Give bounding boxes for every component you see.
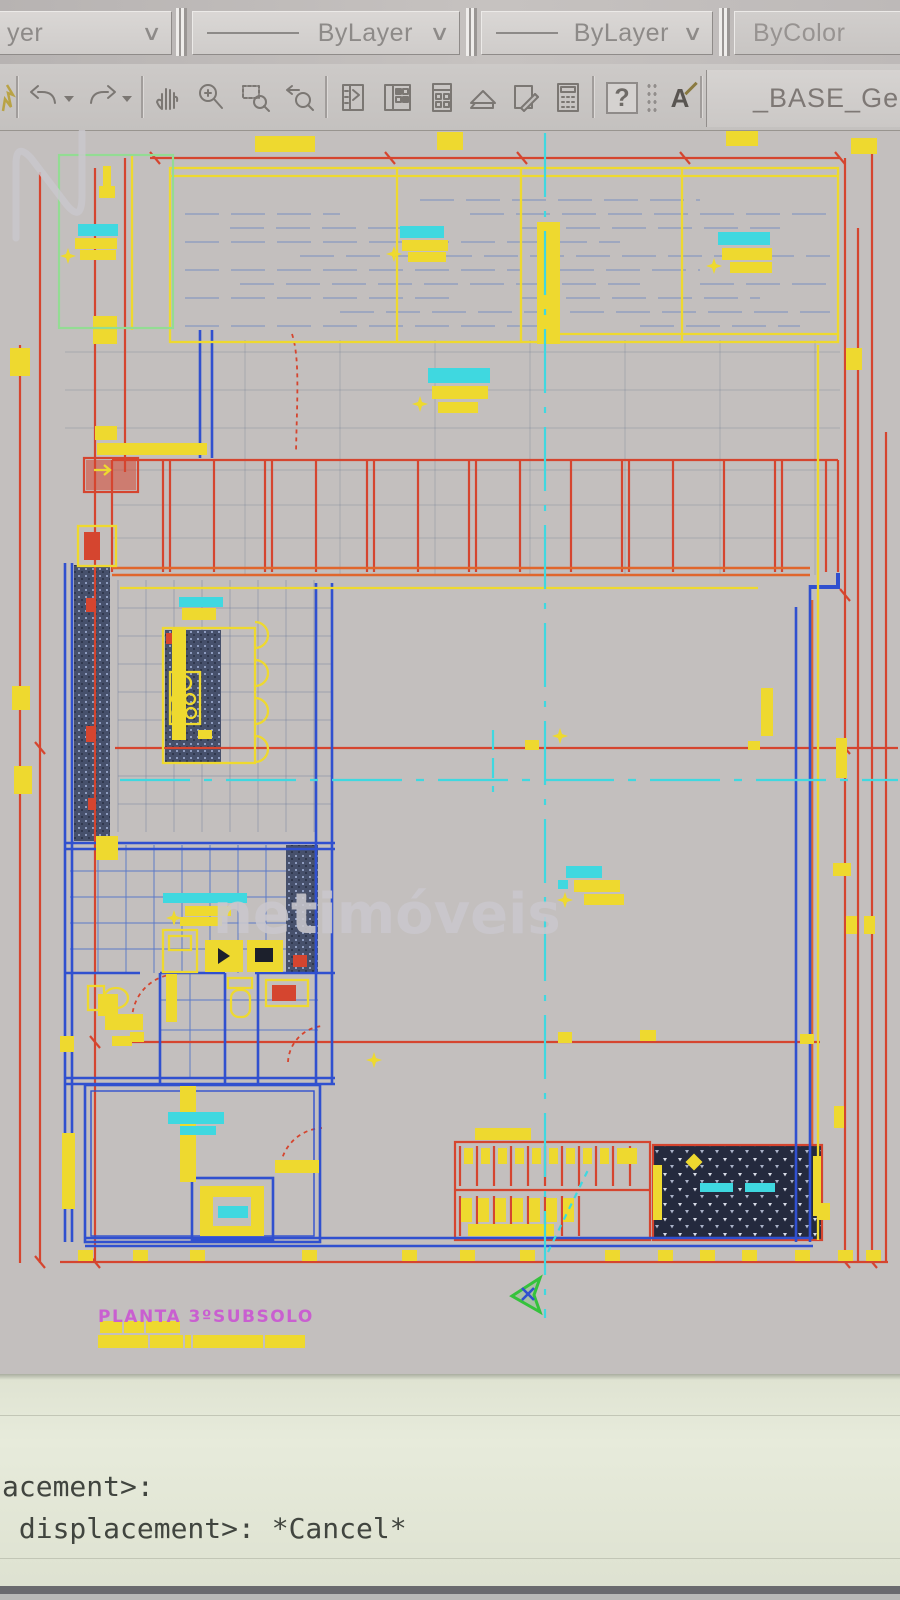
stair-treads xyxy=(461,1148,637,1236)
autocad-window: yer ∨ ByLayer ∨ ByLayer ∨ ByColor xyxy=(0,0,900,1600)
command-prompt-line: displacement>: *Cancel* xyxy=(2,1512,407,1545)
undo-button[interactable] xyxy=(26,80,62,116)
window-edge xyxy=(0,1586,900,1594)
window-edge xyxy=(0,1594,900,1600)
partial-brush-icon[interactable] xyxy=(0,80,22,116)
properties-palette-icon[interactable] xyxy=(336,80,372,116)
divider xyxy=(0,1558,900,1559)
sheet-set-manager-icon[interactable] xyxy=(466,80,502,116)
pan-hand-icon[interactable] xyxy=(150,80,186,116)
lineweight-dropdown-value: ByLayer xyxy=(558,19,685,48)
layer-dropdown[interactable]: yer ∨ xyxy=(0,11,172,55)
plotstyle-dropdown[interactable]: ByColor xyxy=(734,11,900,55)
chevron-down-icon[interactable]: ∨ xyxy=(429,21,450,46)
floor-plan-svg: PLANTA 3ºSUBSOLO xyxy=(0,130,900,1374)
plan-title: PLANTA 3ºSUBSOLO xyxy=(98,1307,314,1327)
text-style-a-icon: A xyxy=(671,83,690,114)
zoom-window-icon[interactable] xyxy=(238,80,274,116)
text-style-name: _BASE_Gera xyxy=(753,83,900,114)
chevron-down-icon[interactable]: ∨ xyxy=(682,21,703,46)
toolbar-separator xyxy=(141,76,143,118)
toolbar-grip[interactable] xyxy=(466,8,477,56)
chevron-down-icon[interactable]: ∨ xyxy=(141,21,162,46)
green-elements xyxy=(59,155,540,1312)
linetype-preview xyxy=(207,32,299,34)
help-question-icon: ? xyxy=(606,82,638,114)
help-button[interactable]: ? xyxy=(604,80,640,116)
zoom-realtime-icon[interactable] xyxy=(194,80,230,116)
watermark-n-logo xyxy=(0,130,100,242)
parking-stalls xyxy=(112,460,838,572)
standard-toolbar: ? A _BASE_Gera xyxy=(0,64,900,131)
lineweight-preview xyxy=(496,32,558,34)
undo-dropdown-icon[interactable] xyxy=(60,80,78,116)
linetype-dropdown-value: ByLayer xyxy=(299,19,432,48)
drawing-canvas[interactable]: PLANTA 3ºSUBSOLO netimóveis xyxy=(0,130,900,1374)
toolbar-separator xyxy=(700,76,702,118)
tool-palettes-icon[interactable] xyxy=(424,80,460,116)
properties-toolbar: yer ∨ ByLayer ∨ ByLayer ∨ ByColor xyxy=(0,0,900,64)
markup-set-manager-icon[interactable] xyxy=(508,80,544,116)
lineweight-dropdown[interactable]: ByLayer ∨ xyxy=(481,11,713,55)
quickcalc-icon[interactable] xyxy=(550,80,586,116)
toolbar-grip[interactable] xyxy=(176,8,187,56)
toolbar-separator xyxy=(592,76,594,118)
zoom-previous-icon[interactable] xyxy=(282,80,318,116)
text-style-button[interactable]: A xyxy=(662,80,698,116)
plotstyle-dropdown-value: ByColor xyxy=(735,19,900,48)
toolbar-grip[interactable] xyxy=(719,8,730,56)
toolbar-separator xyxy=(16,76,18,118)
designcenter-icon[interactable] xyxy=(380,80,416,116)
watermark-text: netimóveis xyxy=(213,882,561,947)
command-history-line: acement>: xyxy=(2,1470,154,1503)
linetype-dropdown[interactable]: ByLayer ∨ xyxy=(192,11,460,55)
text-style-name-dropdown[interactable]: _BASE_Gera xyxy=(706,70,900,127)
redo-dropdown-icon[interactable] xyxy=(118,80,136,116)
layer-dropdown-value: yer xyxy=(0,19,144,48)
divider xyxy=(0,1415,900,1416)
command-line-panel[interactable]: acement>: displacement>: *Cancel* xyxy=(0,1374,900,1600)
bathroom-fixtures xyxy=(88,930,308,1046)
redo-button[interactable] xyxy=(84,80,120,116)
toolbar-grip-dots[interactable] xyxy=(646,82,658,116)
toolbar-separator xyxy=(325,76,327,118)
